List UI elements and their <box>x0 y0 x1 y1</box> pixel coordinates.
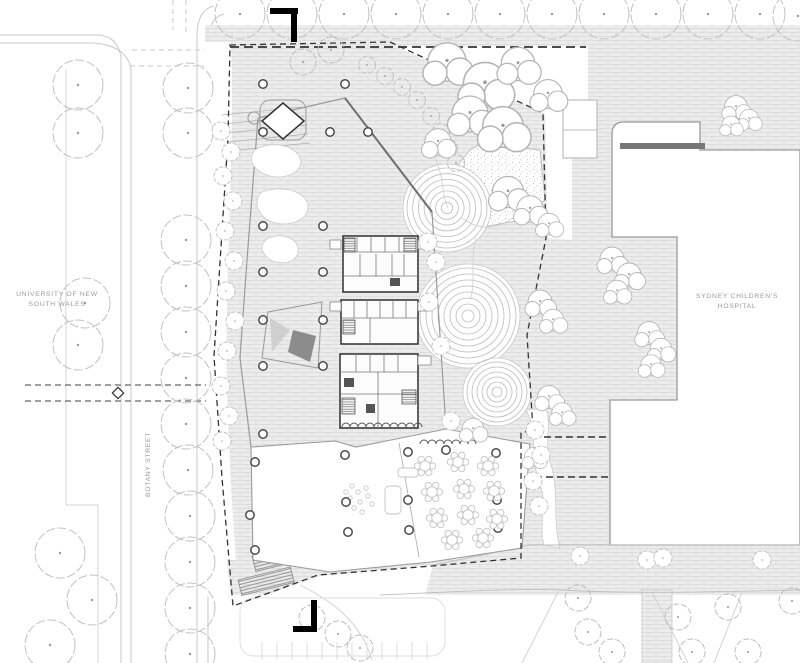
shrub-icon <box>225 252 243 270</box>
column-icon <box>246 511 254 519</box>
column-icon <box>259 80 267 88</box>
column-icon <box>404 448 412 456</box>
shrub-icon <box>217 282 235 300</box>
shrub-icon <box>226 312 244 330</box>
shrub-icon <box>212 122 230 140</box>
core-block-3 <box>340 354 418 428</box>
terrace <box>251 429 530 572</box>
university-label: UNIVERSITY OF NEW SOUTH WALES <box>16 291 98 308</box>
shrub-icon <box>432 337 450 355</box>
hospital-canopy-edge <box>620 143 705 149</box>
shrub-icon <box>222 143 240 161</box>
street-linework <box>0 0 224 663</box>
shrub-icon <box>524 472 542 490</box>
tree-icon <box>735 639 761 663</box>
column-icon <box>319 362 327 370</box>
column-icon <box>259 222 267 230</box>
tree-icon <box>161 261 211 311</box>
shrub-icon <box>224 192 242 210</box>
column-icon <box>319 268 327 276</box>
column-icon <box>492 449 500 457</box>
column-icon <box>442 446 450 454</box>
tree-icon <box>575 619 601 645</box>
hospital-label-line2: HOSPITAL <box>718 303 757 310</box>
column-icon <box>405 526 413 534</box>
tree-icon <box>25 620 75 663</box>
column-icon <box>342 498 350 506</box>
column-icon <box>259 268 267 276</box>
shrub-icon <box>530 497 548 515</box>
tree-icon <box>599 639 625 663</box>
site-plan-page: UNIVERSITY OF NEW SOUTH WALES SYDNEY CHI… <box>0 0 800 663</box>
column-icon <box>251 458 259 466</box>
tree-icon <box>161 215 211 265</box>
shrub-icon <box>220 407 238 425</box>
shrub-icon <box>427 253 445 271</box>
tree-icon <box>67 575 117 625</box>
university-label-line1: UNIVERSITY OF NEW <box>16 291 98 298</box>
tree-icon <box>679 639 705 663</box>
tree-icon <box>161 353 211 403</box>
shrub-icon <box>218 342 236 360</box>
site-plan-drawing: UNIVERSITY OF NEW SOUTH WALES SYDNEY CHI… <box>0 0 800 663</box>
column-icon <box>259 316 267 324</box>
garden-structure <box>563 100 597 158</box>
hospital-label-line1: SYDNEY CHILDREN'S <box>696 293 778 300</box>
shrub-icon <box>420 293 438 311</box>
column-icon <box>259 430 267 438</box>
tree-icon <box>53 108 103 158</box>
column-icon <box>326 128 334 136</box>
shrub-icon <box>214 167 232 185</box>
shrub-icon <box>419 233 437 251</box>
column-icon <box>319 316 327 324</box>
shrub-icon <box>532 446 550 464</box>
tree-icon <box>161 399 211 449</box>
core-block-1 <box>343 236 418 292</box>
tree-icon <box>53 60 103 110</box>
tree-icon <box>161 307 211 357</box>
column-icon <box>364 128 372 136</box>
core-block-2 <box>341 300 418 344</box>
boundary-diamond-marker <box>112 387 123 398</box>
shrub-icon <box>526 421 544 439</box>
university-label-line2: SOUTH WALES <box>29 301 86 308</box>
tree-icon <box>35 528 85 578</box>
shrub-icon <box>216 222 234 240</box>
shrub-icon <box>571 547 589 565</box>
column-icon <box>344 528 352 536</box>
column-icon <box>251 546 259 554</box>
column-icon <box>319 222 327 230</box>
street-label: BOTANY STREET <box>145 432 152 497</box>
shrub-icon <box>213 432 231 450</box>
shrub-icon <box>212 377 230 395</box>
shrub-icon <box>638 551 656 569</box>
section-marker-bottom <box>293 600 317 632</box>
column-icon <box>259 362 267 370</box>
column-icon <box>341 451 349 459</box>
shrub-icon <box>654 549 672 567</box>
shrub-icon <box>442 412 460 430</box>
tree-icon <box>715 594 741 620</box>
column-icon <box>341 80 349 88</box>
column-icon <box>259 128 267 136</box>
column-icon <box>404 496 412 504</box>
shrub-icon <box>753 551 771 569</box>
